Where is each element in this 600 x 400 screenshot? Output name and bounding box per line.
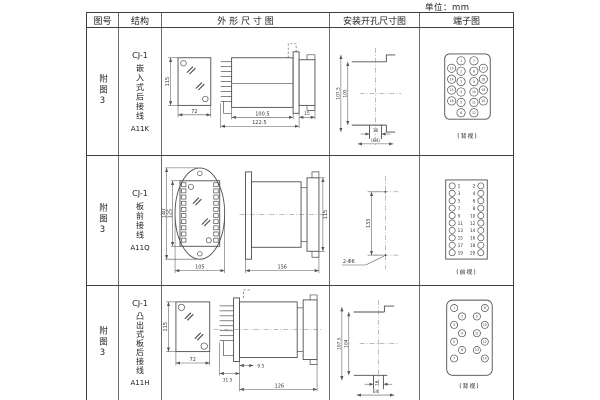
svg-text:3: 3 (460, 80, 462, 84)
row3-fig-no: 附图3 (87, 286, 119, 400)
terminal-numbers: 12 34 56 78 910 1112 1314 1516 1718 1920 (450, 59, 486, 115)
seal-hook (244, 290, 252, 298)
structure-desc: 嵌入式后接线 (135, 64, 146, 121)
svg-text:11: 11 (458, 221, 464, 227)
row2-outline-cell: 140 125 105 15 (162, 156, 330, 286)
svg-text:7: 7 (458, 206, 461, 212)
row2-mounting-cell: 133 2-Φ6 (330, 156, 420, 286)
svg-text:10: 10 (483, 323, 487, 327)
svg-text:1: 1 (460, 59, 462, 63)
dim-hole-spacing: 133 (366, 219, 372, 228)
svg-text:13: 13 (458, 228, 464, 234)
adjust-mark-icon (187, 67, 204, 90)
svg-text:7: 7 (473, 59, 475, 63)
svg-text:10: 10 (472, 90, 476, 94)
row1-mounting-cell: 107.5 105 16 (64) (330, 28, 420, 156)
svg-text:16: 16 (470, 236, 476, 242)
type-code: A11K (131, 125, 149, 133)
dim-span: 64 (373, 389, 379, 395)
terminal-numbers-right: 24 68 1012 1416 1820 (470, 184, 476, 257)
row1-fig-no: 附图3 (87, 28, 119, 156)
svg-text:20: 20 (481, 99, 485, 103)
svg-text:4: 4 (461, 331, 463, 335)
terminal-numbers-left: 13 57 911 1315 1719 (458, 184, 464, 257)
model-label: CJ-1 (132, 189, 148, 198)
dim-front-height: 115 (163, 322, 169, 331)
fig-no-text: 附图3 (97, 326, 109, 361)
model-label: CJ-1 (132, 51, 148, 60)
svg-text:8: 8 (473, 206, 476, 212)
terminal-circles (451, 304, 489, 362)
svg-text:19: 19 (481, 88, 485, 92)
dim-notch: 16 (373, 128, 379, 134)
svg-text:19: 19 (458, 250, 464, 256)
view-label: (前视) (456, 268, 476, 276)
dim-front-width: 105 (195, 265, 204, 271)
hole-callout: 2-Φ6 (343, 259, 355, 265)
svg-text:2: 2 (473, 184, 476, 190)
terminal-strips (181, 183, 218, 242)
terminal-diagram-a11q: 13 57 911 1315 1719 24 68 1012 1416 1820… (420, 156, 513, 285)
terminal-pins (221, 62, 232, 102)
svg-text:3: 3 (458, 191, 461, 197)
row3-terminal-cell: 12 34 56 7 89 1011 1213 14 (背视) (420, 286, 513, 400)
header-structure-label: 结构 (131, 14, 149, 27)
terminal-diagram-a11h: 12 34 56 7 89 1011 1213 14 (背视) (420, 286, 513, 400)
row3-outline-cell: 115 72 (162, 286, 330, 400)
svg-text:8: 8 (484, 306, 486, 310)
row1-outline-cell: 115 72 (162, 28, 330, 156)
svg-text:12: 12 (470, 221, 476, 227)
svg-text:6: 6 (460, 111, 462, 115)
row2-terminal-cell: 13 57 911 1315 1719 24 68 1012 1416 1820… (420, 156, 513, 286)
dim-body-length: 100.5 (255, 111, 269, 117)
terminal-pins (220, 306, 234, 341)
svg-text:1: 1 (453, 306, 455, 310)
svg-text:2: 2 (460, 69, 462, 73)
dim-cutout-inner: 104 (343, 339, 349, 348)
structure-desc: 板前接线 (135, 202, 146, 240)
row1-structure: CJ-1 嵌入式后接线 A11K (119, 28, 162, 156)
fig-no-text: 附图3 (97, 203, 109, 238)
outline-drawing-a11k: 115 72 (162, 28, 329, 155)
row1-terminal-cell: 12 34 56 78 910 1112 1314 1516 1718 1920… (420, 28, 513, 156)
dim-side-height: 115 (323, 210, 329, 219)
type-code: A11H (131, 379, 150, 387)
header-fig-no-label: 图号 (93, 14, 111, 27)
view-label: (背视) (459, 382, 479, 390)
dim-front-len: 31.5 (223, 377, 233, 383)
svg-text:17: 17 (481, 66, 485, 70)
mounting-drawing-a11h: 107.5 104 16 64 (330, 286, 419, 400)
svg-text:2: 2 (461, 315, 463, 319)
svg-text:8: 8 (473, 69, 475, 73)
header-terminal: 端子图 (420, 13, 513, 28)
dim-front-width: 72 (191, 109, 197, 115)
dim-cutout-outer: 107.5 (336, 337, 342, 350)
svg-text:4: 4 (460, 90, 462, 94)
svg-text:18: 18 (481, 77, 485, 81)
svg-text:17: 17 (458, 243, 464, 249)
header-structure: 结构 (119, 13, 162, 28)
mounting-drawing-a11k: 107.5 105 16 (64) (330, 28, 419, 155)
svg-text:5: 5 (453, 340, 455, 344)
terminal-circles (449, 183, 484, 256)
svg-text:11: 11 (472, 101, 476, 105)
dim-front-width: 72 (190, 357, 196, 363)
svg-text:3: 3 (453, 323, 455, 327)
spec-table: 图号 结构 外 形 尺 寸 图 安装开孔尺寸图 端子图 附图3 CJ-1 嵌入式… (86, 12, 514, 400)
svg-text:12: 12 (472, 111, 476, 115)
svg-text:6: 6 (473, 198, 476, 204)
fig-no-text: 附图3 (97, 74, 109, 109)
header-outline-label: 外 形 尺 寸 图 (217, 14, 273, 27)
row3-mounting-cell: 107.5 104 16 64 (330, 286, 420, 400)
svg-text:5: 5 (458, 198, 461, 204)
row3-structure: CJ-1 凸出式板后接线 A11H (119, 286, 162, 400)
header-fig-no: 图号 (87, 13, 119, 28)
svg-text:15: 15 (450, 88, 454, 92)
svg-text:12: 12 (483, 340, 487, 344)
svg-text:20: 20 (470, 250, 476, 256)
dim-inner-height: 125 (167, 209, 173, 218)
header-mounting: 安装开孔尺寸图 (330, 13, 420, 28)
dim-notch: 16 (374, 380, 380, 386)
terminal-diagram-a11k: 12 34 56 78 910 1112 1314 1516 1718 1920… (420, 28, 513, 155)
header-outline: 外 形 尺 寸 图 (162, 13, 330, 28)
svg-text:10: 10 (470, 213, 476, 219)
header-terminal-label: 端子图 (453, 14, 480, 27)
outline-drawing-a11q: 140 125 105 15 (162, 156, 329, 285)
svg-text:1: 1 (458, 184, 461, 190)
svg-text:7: 7 (453, 357, 455, 361)
dim-front-height: 115 (165, 77, 171, 86)
adjust-mark-icon (193, 198, 210, 226)
svg-text:4: 4 (473, 191, 476, 197)
svg-text:13: 13 (475, 348, 479, 352)
dim-bezel: 15 (304, 111, 310, 117)
svg-text:5: 5 (460, 101, 462, 105)
dim-total-length: 126 (275, 383, 284, 389)
adjust-mark-icon (185, 313, 203, 340)
svg-text:14: 14 (483, 357, 487, 361)
svg-text:9: 9 (473, 80, 475, 84)
type-code: A11Q (130, 244, 149, 252)
svg-text:13: 13 (450, 66, 454, 70)
dim-panel: 9.5 (257, 364, 264, 370)
svg-text:9: 9 (458, 213, 461, 219)
row2-fig-no: 附图3 (87, 156, 119, 286)
outline-drawing-a11h: 115 72 (162, 286, 329, 400)
svg-text:11: 11 (475, 331, 479, 335)
dim-cutout-outer: 107.5 (335, 87, 341, 100)
dim-cutout-inner: 105 (342, 89, 348, 98)
row2-structure: CJ-1 板前接线 A11Q (119, 156, 162, 286)
structure-desc: 凸出式板后接线 (135, 312, 146, 375)
model-label: CJ-1 (132, 299, 148, 308)
spec-sheet-page: 单位：mm 图号 结构 外 形 尺 寸 图 安装开孔尺寸图 端子图 附图3 CJ… (0, 0, 600, 400)
view-label: (背视) (457, 132, 477, 140)
svg-text:14: 14 (470, 228, 476, 234)
svg-text:9: 9 (476, 315, 478, 319)
svg-text:14: 14 (450, 77, 454, 81)
svg-text:6: 6 (461, 348, 463, 352)
svg-text:16: 16 (450, 99, 454, 103)
dim-span: (64) (371, 138, 380, 144)
mounting-drawing-a11q: 133 2-Φ6 (330, 156, 419, 285)
header-mounting-label: 安装开孔尺寸图 (343, 14, 406, 27)
svg-text:18: 18 (470, 243, 476, 249)
dim-total-length: 122.5 (252, 120, 266, 126)
dim-side-length: 156 (277, 265, 286, 271)
svg-text:15: 15 (458, 236, 464, 242)
seal-hook (288, 44, 296, 58)
